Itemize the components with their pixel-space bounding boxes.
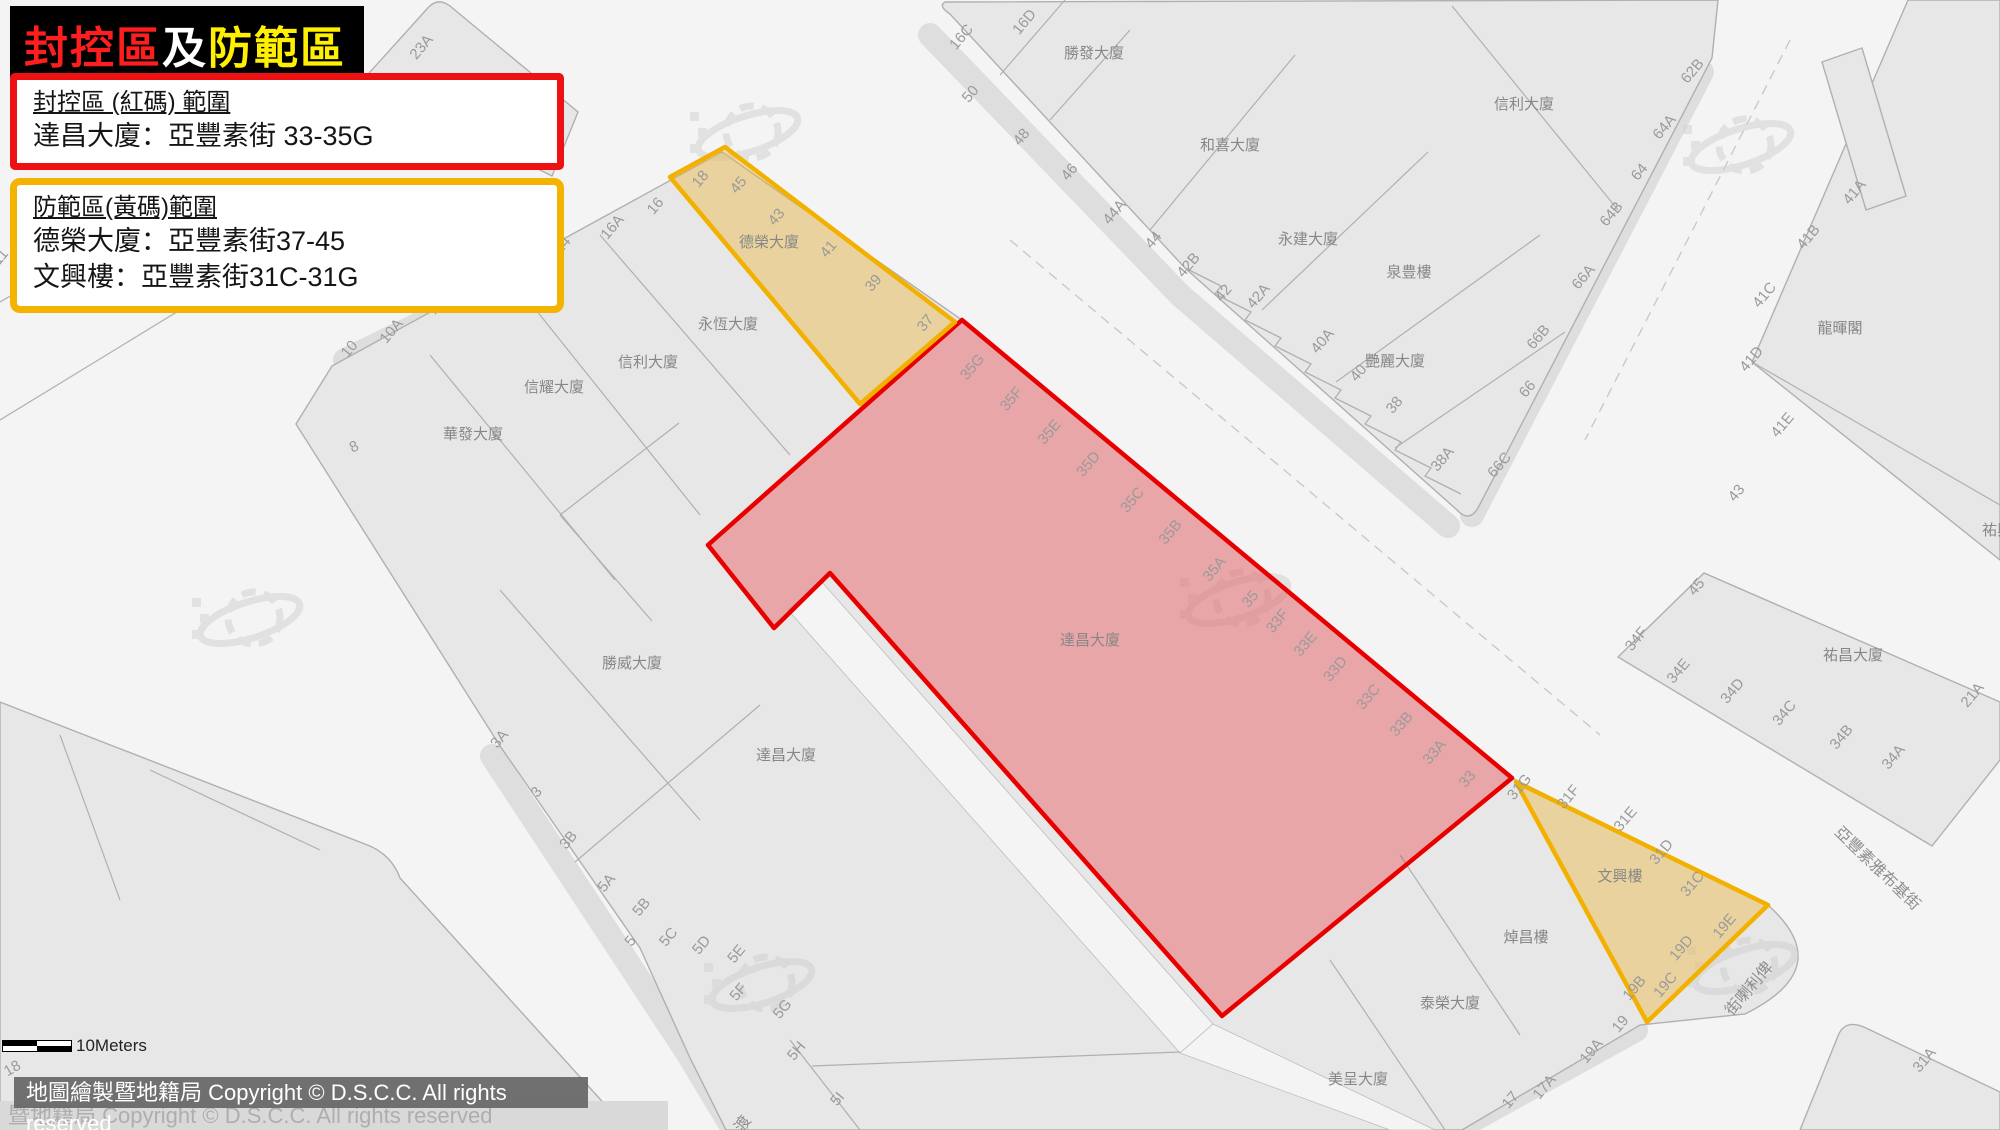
building-label-泰榮大廈: 泰榮大廈 xyxy=(1420,994,1480,1012)
legend-yellow-line1: 德榮大廈：亞豐素街37-45 xyxy=(33,225,557,258)
building-label-勝威大廈: 勝威大廈 xyxy=(602,654,662,672)
building-label-德榮大廈: 德榮大廈 xyxy=(739,233,799,251)
building-label-信利大廈: 信利大廈 xyxy=(618,353,678,371)
legend-yellow-zone: 防範區(黃碼)範圍 德榮大廈：亞豐素街37-45 文興樓：亞豐素街31C-31G xyxy=(10,178,564,313)
building-label-永建大廈: 永建大廈 xyxy=(1278,230,1338,248)
title-red-part: 封控區 xyxy=(24,24,162,73)
lockdown-map-page: 勝發大廈和喜大廈信利大廈永建大廈泉豊樓艷麗大廈龍暉閣祐興大廈祐昌大廈永恆大廈信利… xyxy=(0,0,2000,1130)
legend-red-heading: 封控區 (紅碼) 範圍 xyxy=(33,88,557,117)
building-label-和喜大廈: 和喜大廈 xyxy=(1200,136,1260,154)
street-number-43: 43 xyxy=(1725,481,1749,505)
legend-red-line: 達昌大廈：亞豐素街 33-35G xyxy=(33,120,557,153)
building-label-焯昌樓: 焯昌樓 xyxy=(1503,929,1548,946)
building-label-信耀大廈: 信耀大廈 xyxy=(524,378,584,396)
building-label-美呈大廈: 美呈大廈 xyxy=(1328,1070,1388,1088)
legend-yellow-line2: 文興樓：亞豐素街31C-31G xyxy=(33,261,557,294)
block-northeast xyxy=(1752,0,2000,560)
building-label-祐昌大廈: 祐昌大廈 xyxy=(1823,646,1883,664)
scale-bar: 10Meters xyxy=(2,1036,147,1056)
building-label-信利大廈: 信利大廈 xyxy=(1494,95,1554,113)
building-label-達昌大廈: 達昌大廈 xyxy=(1060,631,1120,649)
block-bottomright xyxy=(1800,1024,2000,1130)
building-label-華發大廈: 華發大廈 xyxy=(443,425,503,443)
dscc-logo-watermark xyxy=(192,587,305,653)
legend-red-zone: 封控區 (紅碼) 範圍 達昌大廈：亞豐素街 33-35G xyxy=(10,73,564,170)
building-label-文興樓: 文興樓 xyxy=(1597,868,1642,885)
building-label-祐興大廈: 祐興大廈 xyxy=(1982,521,2000,539)
block-east xyxy=(1618,573,2000,846)
title-yellow-part: 防範區 xyxy=(208,24,346,73)
building-label-達昌大廈: 達昌大廈 xyxy=(756,746,816,764)
building-label-龍暉閣: 龍暉閣 xyxy=(1817,320,1862,337)
street-number-41E: 41E xyxy=(1767,409,1797,440)
title-white-part: 及 xyxy=(162,24,208,73)
scale-bar-graphic xyxy=(2,1040,72,1052)
scale-bar-label: 10Meters xyxy=(76,1036,147,1056)
legend-yellow-heading: 防範區(黃碼)範圍 xyxy=(33,193,557,222)
building-label-勝發大廈: 勝發大廈 xyxy=(1064,44,1124,62)
dscc-logo-watermark xyxy=(1683,114,1796,180)
building-label-泉豊樓: 泉豊樓 xyxy=(1386,264,1431,281)
copyright-bar: 地圖繪製暨地籍局 Copyright © D.S.C.C. All rights… xyxy=(14,1077,588,1108)
street-name-亞豐素雅布基街: 亞豐素雅布基街 xyxy=(1831,823,1924,914)
building-label-艷麗大廈: 艷麗大廈 xyxy=(1365,352,1425,370)
building-label-永恆大廈: 永恆大廈 xyxy=(698,315,758,333)
